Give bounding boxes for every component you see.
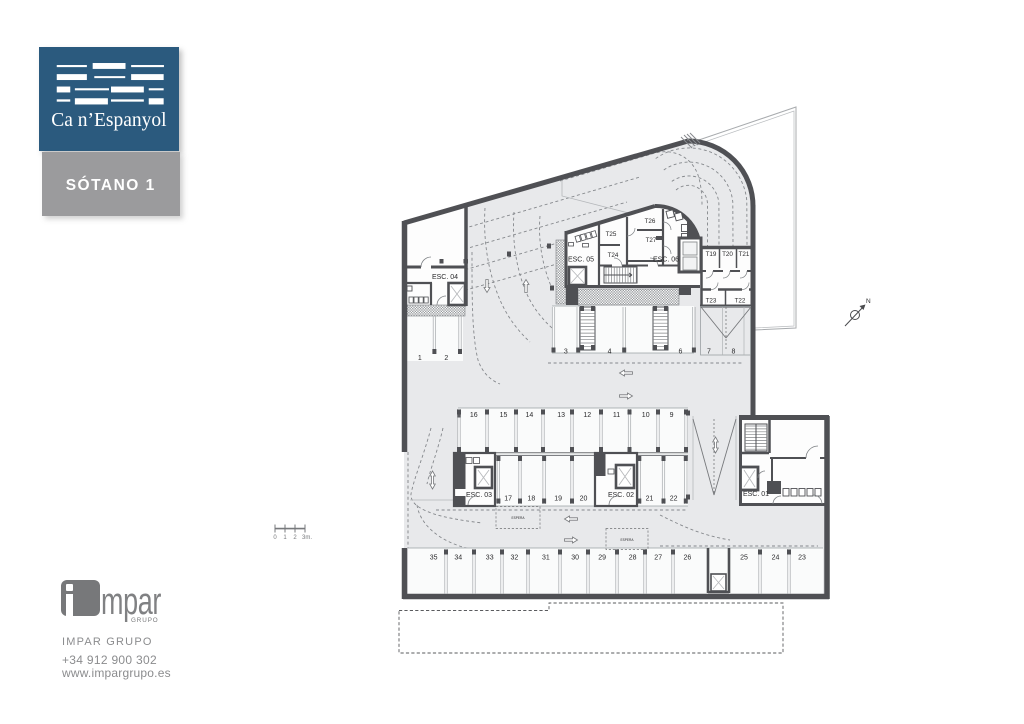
- svg-text:8: 8: [732, 349, 736, 356]
- svg-text:N: N: [866, 298, 871, 305]
- svg-text:14: 14: [526, 412, 534, 419]
- svg-text:3m.: 3m.: [302, 535, 312, 541]
- svg-text:19: 19: [554, 496, 562, 503]
- svg-text:34: 34: [454, 555, 462, 562]
- svg-text:T25: T25: [606, 231, 617, 238]
- svg-text:6: 6: [678, 349, 682, 356]
- svg-text:18: 18: [528, 496, 536, 503]
- svg-text:ESC. 01: ESC. 01: [743, 491, 769, 498]
- svg-text:27: 27: [654, 555, 662, 562]
- svg-text:13: 13: [557, 412, 565, 419]
- svg-text:7: 7: [707, 349, 711, 356]
- svg-text:ESC. 06: ESC. 06: [653, 257, 679, 264]
- svg-text:T22: T22: [735, 298, 746, 305]
- svg-text:0: 0: [273, 535, 277, 541]
- svg-text:T19: T19: [706, 251, 717, 258]
- svg-text:33: 33: [486, 555, 494, 562]
- svg-text:T20: T20: [722, 251, 733, 258]
- svg-text:11: 11: [613, 412, 620, 419]
- svg-text:T21: T21: [739, 251, 750, 258]
- svg-text:24: 24: [772, 555, 780, 562]
- svg-text:17: 17: [504, 496, 512, 503]
- svg-text:12: 12: [583, 412, 591, 419]
- svg-text:T24: T24: [608, 252, 619, 259]
- svg-text:ESPERA: ESPERA: [512, 516, 526, 520]
- svg-text:35: 35: [430, 555, 438, 562]
- svg-text:T23: T23: [706, 298, 717, 305]
- svg-text:22: 22: [670, 496, 678, 503]
- svg-text:T27: T27: [646, 237, 657, 244]
- svg-text:21: 21: [646, 496, 654, 503]
- svg-text:9: 9: [670, 412, 674, 419]
- svg-text:30: 30: [571, 555, 579, 562]
- svg-text:T26: T26: [645, 218, 656, 225]
- svg-text:1: 1: [418, 355, 422, 362]
- svg-text:3: 3: [564, 349, 568, 356]
- svg-text:2: 2: [444, 355, 448, 362]
- svg-text:31: 31: [542, 555, 550, 562]
- svg-text:23: 23: [798, 555, 806, 562]
- svg-text:ESPERA: ESPERA: [621, 538, 635, 542]
- svg-text:29: 29: [598, 555, 606, 562]
- svg-text:25: 25: [740, 555, 748, 562]
- svg-text:32: 32: [511, 555, 519, 562]
- svg-text:ESC. 05: ESC. 05: [568, 257, 594, 264]
- svg-text:2: 2: [293, 535, 297, 541]
- svg-text:ESC. 03: ESC. 03: [466, 492, 492, 499]
- svg-text:28: 28: [629, 555, 637, 562]
- svg-text:26: 26: [684, 555, 692, 562]
- svg-text:15: 15: [500, 412, 508, 419]
- svg-text:ESC. 04: ESC. 04: [432, 274, 458, 281]
- svg-text:16: 16: [470, 412, 478, 419]
- svg-text:10: 10: [642, 412, 650, 419]
- svg-text:4: 4: [608, 349, 612, 356]
- svg-text:20: 20: [580, 496, 588, 503]
- svg-text:1: 1: [283, 535, 287, 541]
